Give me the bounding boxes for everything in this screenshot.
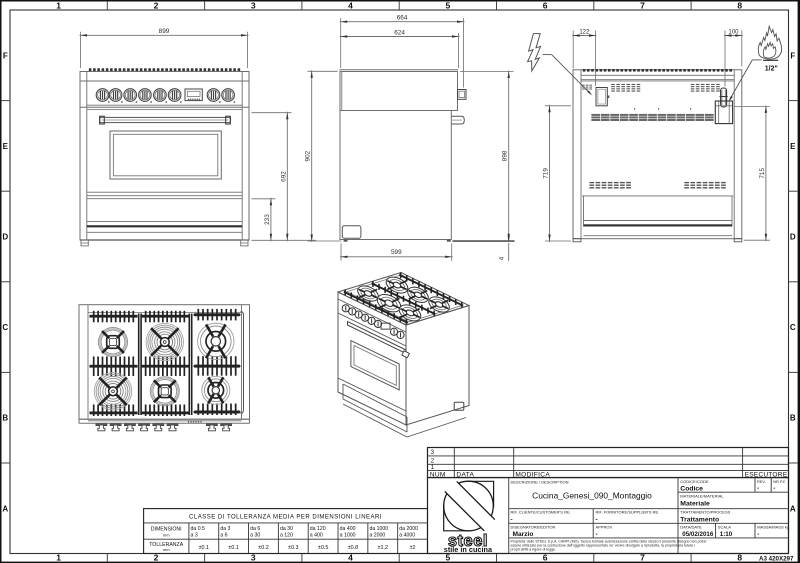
svg-text:6: 6 [543, 0, 548, 10]
svg-text:NR.PZ.: NR.PZ. [773, 479, 786, 484]
svg-text:3: 3 [251, 553, 256, 563]
svg-text:stile in cucina: stile in cucina [444, 545, 493, 554]
svg-text:±0.8: ±0.8 [348, 545, 358, 551]
svg-text:mm: mm [163, 532, 170, 537]
svg-text:4: 4 [499, 256, 506, 260]
svg-text:da 1000: da 1000 [369, 526, 388, 532]
svg-text:CLASSE DI TOLLERANZA MEDIA PER: CLASSE DI TOLLERANZA MEDIA PER DIMENSION… [189, 514, 382, 520]
svg-text:da 400: da 400 [340, 526, 356, 532]
svg-text:E: E [3, 142, 9, 151]
svg-text:SCALA: SCALA [718, 524, 731, 529]
svg-text:RIF. FORNITORE/SUPPLIER'S RE.: RIF. FORNITORE/SUPPLIER'S RE. [596, 510, 660, 515]
svg-text:±1.2: ±1.2 [378, 545, 388, 551]
svg-text:-: - [757, 485, 759, 492]
svg-text:APPROV.: APPROV. [596, 524, 613, 529]
svg-text:da 0.5: da 0.5 [191, 526, 206, 532]
svg-text:Materiale: Materiale [680, 501, 710, 508]
svg-text:DATA/DATE: DATA/DATE [680, 524, 702, 529]
svg-text:233: 233 [264, 214, 271, 225]
svg-text:a 30: a 30 [250, 532, 260, 538]
svg-text:902: 902 [305, 150, 312, 161]
svg-text:D: D [2, 233, 8, 242]
svg-text:TRATTAMENTO/PROCESS: TRATTAMENTO/PROCESS [680, 509, 730, 514]
svg-text:C: C [2, 323, 8, 332]
svg-text:8: 8 [737, 0, 742, 10]
svg-text:-: - [757, 531, 759, 538]
svg-text:05/02/2016: 05/02/2016 [682, 531, 714, 538]
svg-text:MASSA/MASS kg: MASSA/MASS kg [757, 524, 789, 529]
svg-text:-: - [596, 531, 598, 538]
svg-text:624: 624 [394, 29, 405, 36]
svg-text:±0.1: ±0.1 [199, 545, 209, 551]
svg-text:664: 664 [397, 15, 408, 22]
svg-text:RIF. CLIENTE/CUSTOMER'S RE.: RIF. CLIENTE/CUSTOMER'S RE. [511, 510, 571, 515]
svg-text:A: A [790, 504, 796, 513]
svg-text:692: 692 [280, 171, 287, 182]
svg-text:5: 5 [445, 0, 450, 10]
svg-text:4: 4 [348, 0, 353, 10]
svg-text:B: B [2, 414, 8, 423]
svg-text:Trattamento: Trattamento [680, 516, 719, 523]
svg-text:3: 3 [251, 0, 256, 10]
svg-text:da 30: da 30 [280, 526, 293, 532]
svg-text:Cucina_Genesi_090_Montaggio: Cucina_Genesi_090_Montaggio [532, 491, 652, 501]
svg-text:898: 898 [502, 150, 509, 161]
svg-text:1: 1 [56, 553, 61, 563]
svg-text:-: - [511, 517, 513, 524]
svg-text:a 120: a 120 [280, 532, 293, 538]
svg-text:100: 100 [728, 29, 739, 35]
svg-text:a 2000: a 2000 [369, 532, 385, 538]
svg-text:2: 2 [154, 0, 159, 10]
svg-text:DESCRIZIONE / DESCRIPTION: DESCRIZIONE / DESCRIPTION [511, 479, 569, 484]
svg-text:a 4000: a 4000 [399, 532, 415, 538]
svg-text:da 6: da 6 [250, 526, 260, 532]
svg-text:mm: mm [163, 547, 170, 552]
svg-text:2: 2 [154, 553, 159, 563]
svg-text:-: - [596, 517, 598, 524]
svg-text:A3 420X297: A3 420X297 [759, 555, 794, 562]
svg-text:715: 715 [759, 168, 766, 179]
svg-text:da 2000: da 2000 [399, 526, 418, 532]
svg-text:DISEGNATORE/EDITOR: DISEGNATORE/EDITOR [511, 524, 556, 529]
svg-text:7: 7 [640, 0, 645, 10]
svg-text:±0.5: ±0.5 [318, 545, 328, 551]
svg-text:F: F [790, 51, 795, 60]
svg-text:D: D [790, 233, 796, 242]
svg-text:MATERIALE/MATERIAL: MATERIALE/MATERIAL [680, 494, 724, 499]
svg-text:da 120: da 120 [310, 526, 326, 532]
svg-text:a 400: a 400 [310, 532, 323, 538]
svg-text:F: F [3, 51, 8, 60]
svg-text:Codice: Codice [680, 485, 703, 492]
svg-text:E: E [790, 142, 796, 151]
svg-text:REV.: REV. [757, 479, 766, 484]
svg-text:a 1000: a 1000 [340, 532, 356, 538]
svg-text:1: 1 [56, 0, 61, 10]
svg-text:A: A [2, 504, 8, 513]
svg-text:1:10: 1:10 [720, 531, 733, 538]
svg-text:899: 899 [159, 28, 170, 35]
svg-text:a 3: a 3 [191, 532, 198, 538]
svg-text:599: 599 [391, 249, 402, 256]
svg-text:±0.2: ±0.2 [258, 545, 268, 551]
svg-text:B: B [790, 414, 796, 423]
svg-text:Marzio: Marzio [513, 531, 534, 538]
svg-text:122: 122 [579, 29, 590, 35]
svg-text:a 6: a 6 [220, 532, 227, 538]
svg-text:-: - [773, 485, 775, 492]
svg-text:±0.3: ±0.3 [288, 545, 298, 551]
svg-text:C: C [790, 323, 796, 332]
svg-text:1/2": 1/2" [765, 65, 778, 72]
svg-text:4: 4 [348, 553, 353, 563]
svg-text:da 3: da 3 [220, 526, 230, 532]
svg-text:±0.1: ±0.1 [228, 545, 238, 551]
svg-text:CODICE/CODE: CODICE/CODE [680, 479, 709, 484]
svg-text:propri diritti a rigore di leg: propri diritti a rigore di legge. [511, 548, 557, 552]
svg-text:719: 719 [543, 168, 550, 179]
svg-text:±2: ±2 [410, 545, 416, 551]
